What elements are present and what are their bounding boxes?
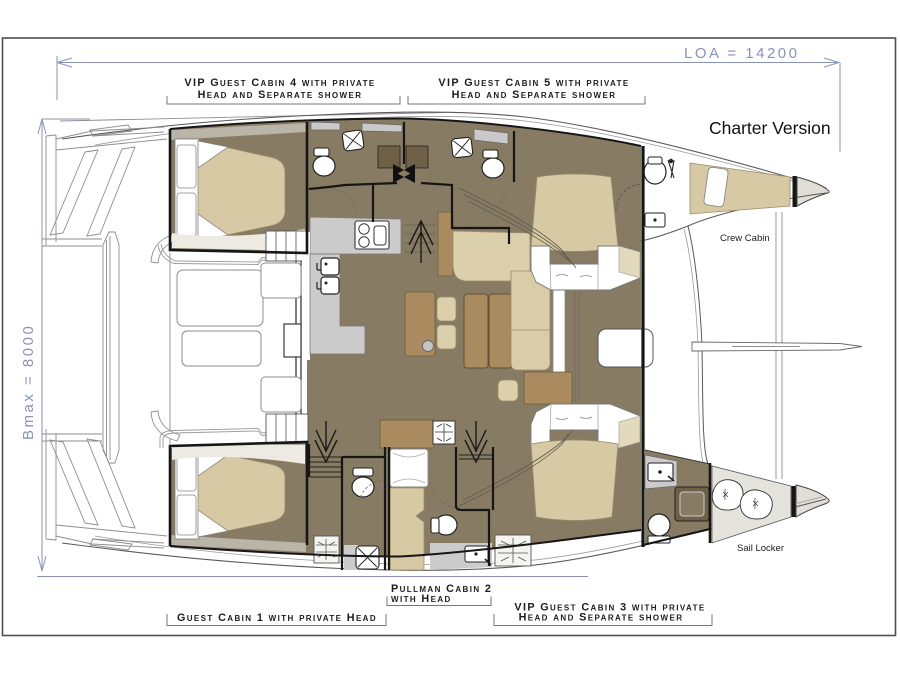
svg-text:Sail Locker: Sail Locker	[737, 543, 784, 554]
svg-text:VIP Guest Cabin 5 with private: VIP Guest Cabin 5 with private	[438, 77, 629, 89]
svg-text:Guest Cabin 1 with private Hea: Guest Cabin 1 with private Head	[177, 612, 377, 624]
svg-text:Charter Version: Charter Version	[709, 118, 831, 138]
svg-text:with Head: with Head	[391, 593, 452, 605]
svg-text:Bmax = 8000: Bmax = 8000	[20, 324, 37, 440]
svg-text:VIP Guest Cabin 4 with private: VIP Guest Cabin 4 with private	[184, 77, 375, 89]
svg-text:LOA = 14200: LOA = 14200	[684, 45, 800, 62]
svg-text:Head and Separate shower: Head and Separate shower	[452, 89, 617, 101]
svg-text:Head and Separate shower: Head and Separate shower	[519, 612, 684, 624]
svg-text:Head and Separate shower: Head and Separate shower	[198, 89, 363, 101]
svg-text:Crew Cabin: Crew Cabin	[720, 233, 770, 244]
